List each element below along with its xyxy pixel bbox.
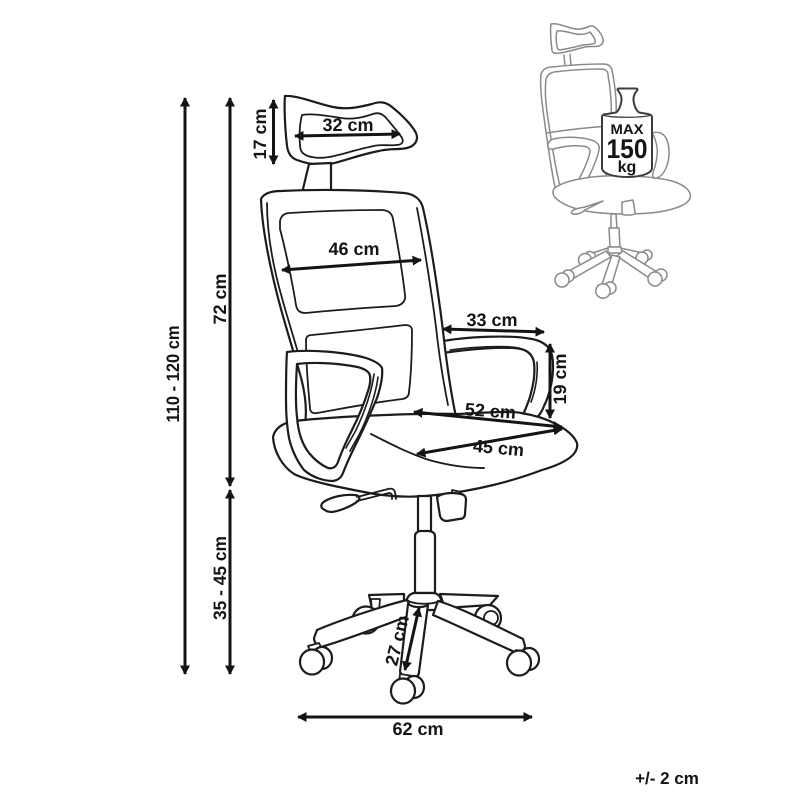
svg-text:kg: kg — [618, 159, 637, 176]
svg-text:33 cm: 33 cm — [466, 310, 517, 330]
svg-text:35 - 45 cm: 35 - 45 cm — [210, 536, 230, 620]
svg-text:19 cm: 19 cm — [550, 353, 570, 404]
svg-text:110 - 120 cm: 110 - 120 cm — [163, 326, 183, 423]
svg-text:+/- 2 cm: +/- 2 cm — [635, 769, 699, 788]
svg-text:52 cm: 52 cm — [464, 399, 516, 423]
svg-text:17 cm: 17 cm — [250, 108, 270, 159]
svg-text:62 cm: 62 cm — [392, 719, 443, 739]
svg-text:46 cm: 46 cm — [328, 239, 379, 259]
svg-text:72 cm: 72 cm — [210, 273, 230, 324]
svg-text:32 cm: 32 cm — [322, 115, 373, 135]
